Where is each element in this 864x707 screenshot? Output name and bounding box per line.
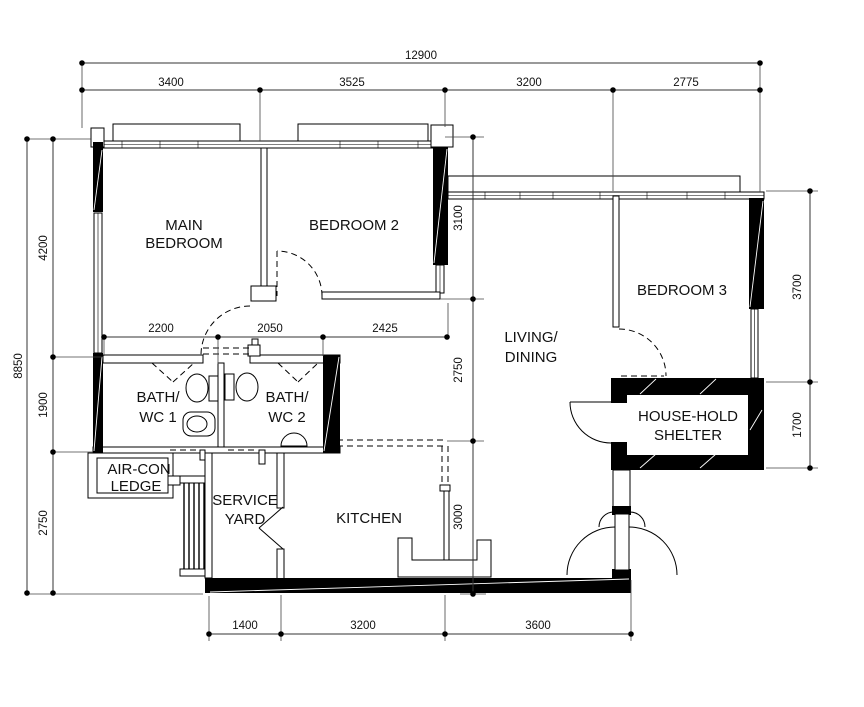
- entrance-door-panel: [615, 514, 629, 570]
- dim-inner-v-1: 3100: [453, 205, 465, 231]
- laundry-rack: [168, 476, 205, 576]
- folding-door-bath2: [278, 363, 318, 382]
- door-arc-bedroom-2: [277, 251, 322, 296]
- basin-symbol-bath2: [281, 433, 307, 446]
- window-ledge-living-bedroom-3: [448, 176, 740, 192]
- wall-divider-mainbed-bed2: [261, 148, 267, 297]
- dim-inner-h-1: 2200: [148, 323, 174, 335]
- dim-left-3: 2750: [38, 510, 50, 536]
- room-label-aircon-line1: AIR-CON: [107, 461, 170, 478]
- dim-top-4: 2775: [673, 77, 699, 89]
- window-ledge-bedroom-2: [298, 124, 428, 141]
- dim-overall-height: 8850: [13, 353, 25, 379]
- dim-bottom-3: 3600: [525, 620, 551, 632]
- dim-right-1: 3700: [792, 274, 804, 300]
- wall-entrance-stub: [613, 470, 630, 507]
- wall-bedroom3-left: [613, 196, 619, 327]
- toilet-symbol-bath2: [225, 373, 258, 401]
- room-label-service-yard-line2: YARD: [225, 511, 266, 528]
- dim-left-2: 1900: [38, 392, 50, 418]
- dim-inner-h-2: 2050: [257, 323, 283, 335]
- room-label-main-bedroom-line2: BEDROOM: [145, 235, 223, 252]
- room-label-living-line1: LIVING/: [504, 329, 558, 346]
- wall-door-jog: [251, 286, 276, 301]
- toilet-symbol-bath1: [186, 374, 218, 402]
- dim-overall-width: 12900: [405, 50, 437, 62]
- dim-top-1: 3400: [158, 77, 184, 89]
- dimension-chain-left: [24, 136, 203, 596]
- wall-notch-bedroom2-living: [431, 125, 453, 147]
- room-label-bath2-line1: BATH/: [265, 389, 309, 406]
- wall-kitchen-living: [444, 491, 449, 561]
- room-label-kitchen: KITCHEN: [336, 510, 402, 527]
- wall-bath-bottom: [93, 447, 340, 453]
- wall-bath-divider: [218, 363, 224, 448]
- basin-symbol-bath1: [183, 412, 215, 436]
- room-label-aircon-line2: LEDGE: [111, 478, 162, 495]
- entrance-door: [615, 514, 629, 570]
- wall-kitchen-living-cap: [440, 485, 450, 491]
- dim-bottom-2: 3200: [350, 620, 376, 632]
- dim-inner-v-3: 3000: [453, 504, 465, 530]
- room-label-bath1-line1: BATH/: [136, 389, 180, 406]
- dim-top-2: 3525: [339, 77, 365, 89]
- window-ledge-main-bedroom: [113, 124, 240, 141]
- folding-door-bath1: [152, 363, 194, 382]
- household-shelter-door-opening: [609, 403, 629, 442]
- room-label-household-shelter-line2: SHELTER: [654, 427, 722, 444]
- dim-top-3: 3200: [516, 77, 542, 89]
- wall-service-yard-left: [205, 453, 212, 578]
- dim-right-2: 1700: [792, 412, 804, 438]
- wall-bedroom2-bottom: [322, 292, 440, 299]
- room-label-bedroom-2: BEDROOM 2: [309, 217, 399, 234]
- dim-left-1: 4200: [38, 235, 50, 261]
- room-label-main-bedroom-line1: MAIN: [165, 217, 203, 234]
- room-label-service-yard-line1: SERVICE: [212, 492, 278, 509]
- room-label-bath1-line2: WC 1: [139, 409, 177, 426]
- room-label-household-shelter-line1: HOUSE-HOLD: [638, 408, 738, 425]
- fixtures: [168, 339, 307, 576]
- wall-mainbed-bath-left: [103, 355, 203, 363]
- wall-service-yard-right-lower: [277, 549, 284, 580]
- room-label-living-line2: DINING: [505, 349, 558, 366]
- door-arc-household-shelter: [570, 402, 611, 443]
- room-label-bath2-line2: WC 2: [268, 409, 306, 426]
- dim-bottom-1: 1400: [232, 620, 258, 632]
- door-arc-bedroom-3: [619, 329, 666, 376]
- dim-inner-h-3: 2425: [372, 323, 398, 335]
- room-label-bedroom-3: BEDROOM 3: [637, 282, 727, 299]
- floor-plan: 12900 3400 3525 3200 2775 8850 4200 1900…: [0, 0, 864, 707]
- dim-inner-v-2: 2750: [453, 357, 465, 383]
- sink-symbol-hall: [248, 339, 260, 356]
- wall-service-yard-right-upper: [277, 453, 284, 508]
